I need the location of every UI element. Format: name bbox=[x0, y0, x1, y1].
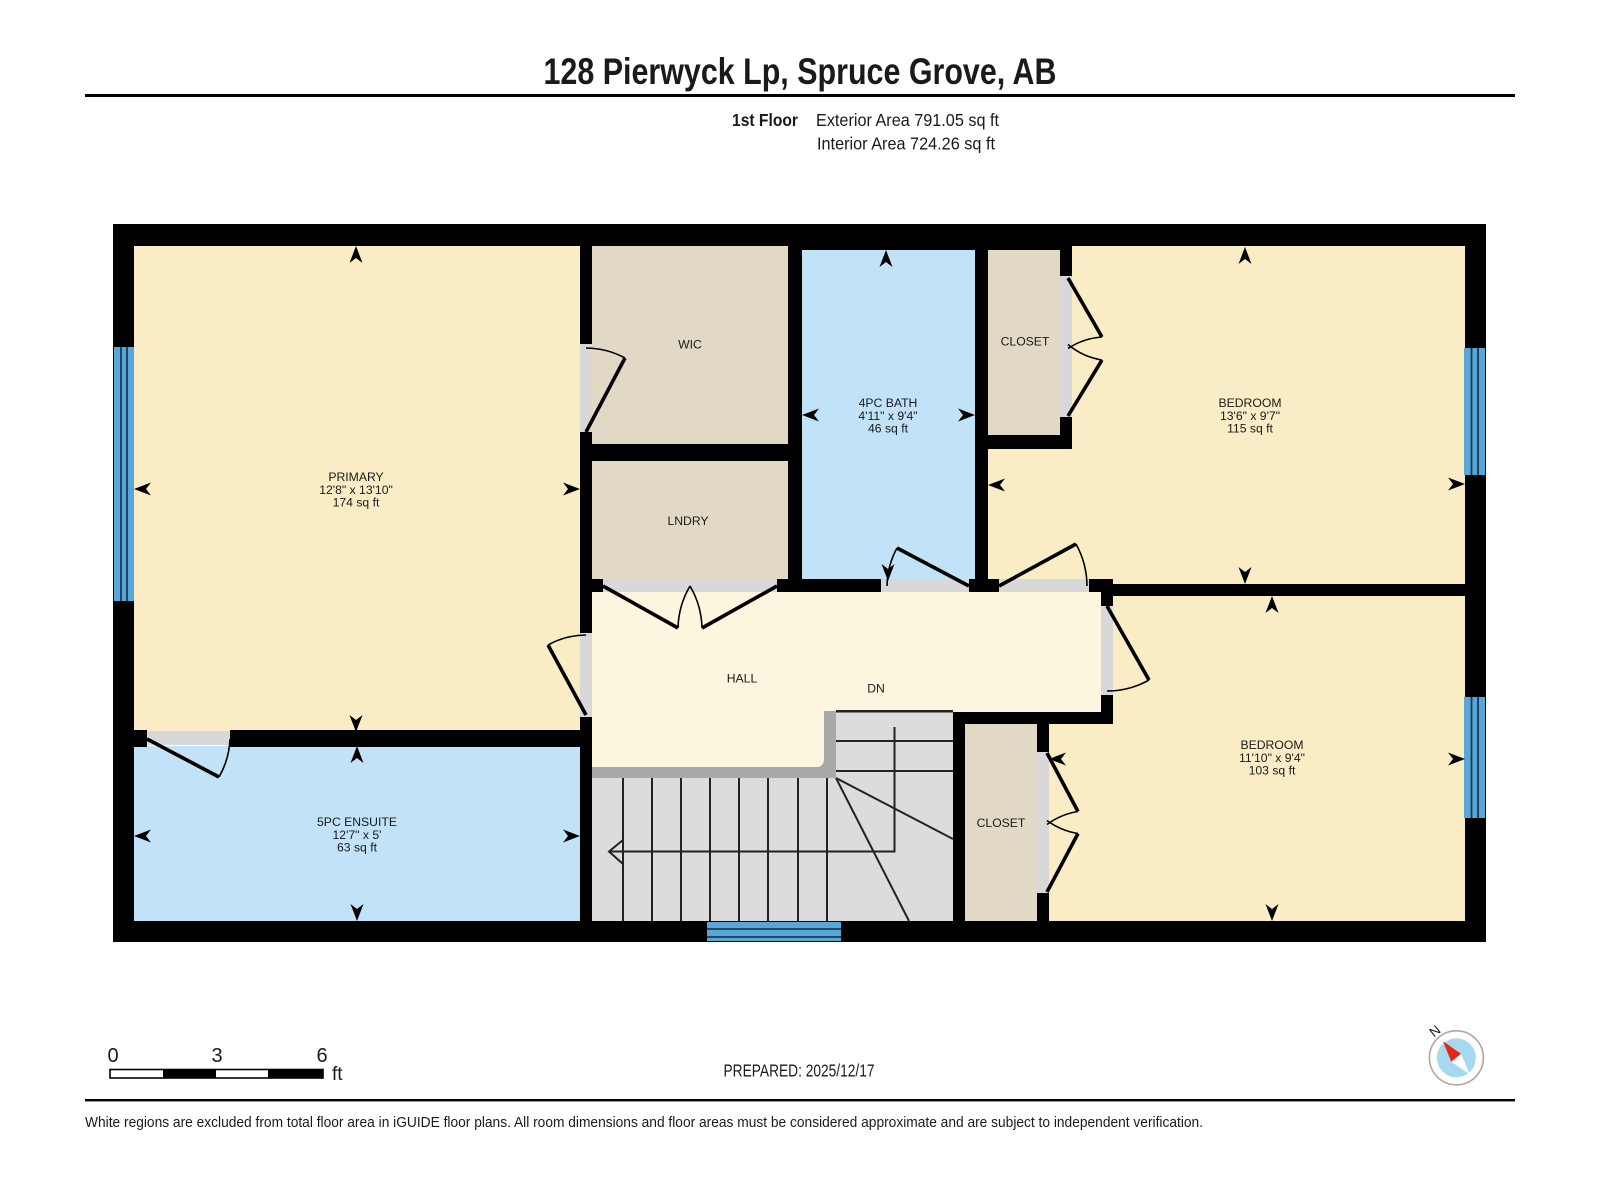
svg-text:CLOSET: CLOSET bbox=[977, 816, 1026, 830]
svg-text:ft: ft bbox=[332, 1064, 343, 1085]
svg-text:46 sq ft: 46 sq ft bbox=[868, 422, 909, 436]
svg-text:CLOSET: CLOSET bbox=[1001, 335, 1050, 349]
svg-text:HALL: HALL bbox=[727, 672, 758, 686]
svg-text:DN: DN bbox=[867, 682, 885, 696]
svg-text:128 Pierwyck Lp, Spruce Grove,: 128 Pierwyck Lp, Spruce Grove, AB bbox=[544, 51, 1057, 92]
svg-text:63 sq ft: 63 sq ft bbox=[337, 841, 378, 855]
svg-text:6: 6 bbox=[316, 1045, 327, 1067]
svg-text:Exterior Area 791.05 sq ft: Exterior Area 791.05 sq ft bbox=[816, 110, 999, 130]
svg-text:WIC: WIC bbox=[678, 338, 702, 352]
svg-text:LNDRY: LNDRY bbox=[667, 514, 708, 528]
svg-text:4PC BATH: 4PC BATH bbox=[859, 396, 918, 410]
svg-text:PRIMARY: PRIMARY bbox=[328, 470, 383, 484]
svg-text:BEDROOM: BEDROOM bbox=[1241, 738, 1304, 752]
svg-text:BEDROOM: BEDROOM bbox=[1219, 396, 1282, 410]
svg-text:115 sq ft: 115 sq ft bbox=[1227, 422, 1273, 436]
svg-text:5PC ENSUITE: 5PC ENSUITE bbox=[317, 815, 397, 829]
svg-text:0: 0 bbox=[107, 1045, 118, 1067]
svg-text:Interior Area 724.26 sq ft: Interior Area 724.26 sq ft bbox=[817, 134, 995, 154]
svg-text:174 sq ft: 174 sq ft bbox=[333, 496, 380, 510]
svg-text:1st Floor: 1st Floor bbox=[732, 110, 798, 130]
svg-text:3: 3 bbox=[211, 1045, 222, 1067]
svg-text:103 sq ft: 103 sq ft bbox=[1249, 764, 1296, 778]
svg-text:White regions are excluded fro: White regions are excluded from total fl… bbox=[85, 1115, 1203, 1131]
svg-text:PREPARED: 2025/12/17: PREPARED: 2025/12/17 bbox=[724, 1061, 875, 1081]
